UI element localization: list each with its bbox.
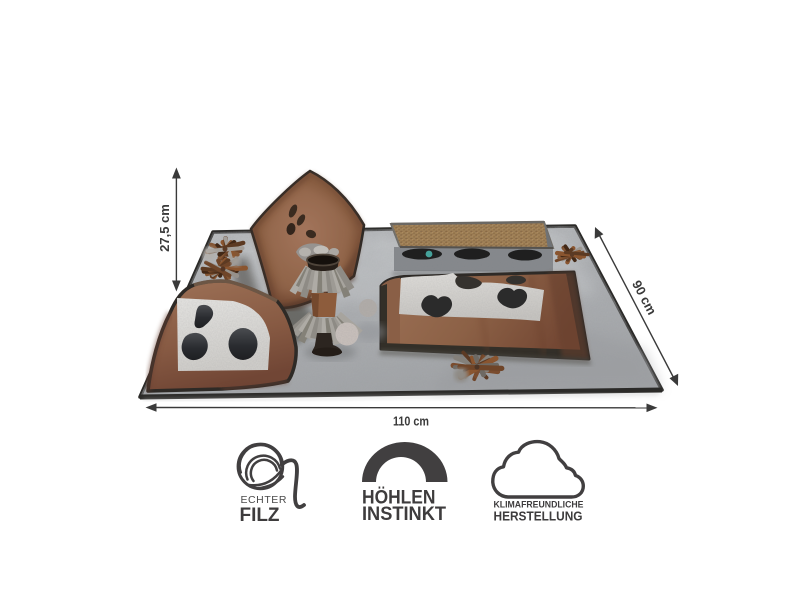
svg-text:110 cm: 110 cm: [393, 414, 429, 429]
svg-text:27,5 cm: 27,5 cm: [157, 204, 172, 252]
svg-text:HERSTELLUNG: HERSTELLUNG: [494, 509, 583, 524]
svg-text:INSTINKT: INSTINKT: [362, 504, 446, 525]
svg-text:FILZ: FILZ: [240, 504, 280, 526]
